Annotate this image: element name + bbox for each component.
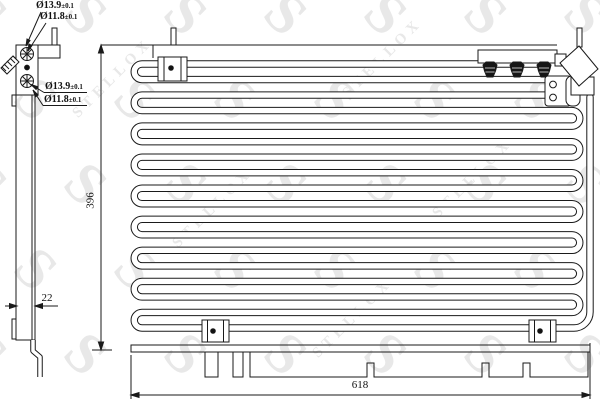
- right-pin: [577, 28, 582, 47]
- manifold-fitting-1: [483, 62, 497, 77]
- front-view: [101, 28, 598, 377]
- top-pin: [171, 28, 176, 45]
- height-dimension-text: 396: [86, 186, 99, 216]
- bottom-z-bracket: [33, 340, 40, 377]
- mounting-clip-bottom-right: [529, 320, 556, 342]
- dia-value: Ø11.8: [40, 11, 65, 22]
- dia-tolerance: ±0.1: [70, 83, 83, 91]
- dia-value: Ø13.9: [45, 81, 70, 92]
- port-dia-label-top-outer: Ø13.9±0.1: [36, 1, 74, 11]
- dia-tolerance: ±0.1: [69, 96, 82, 104]
- port-top: [21, 48, 34, 61]
- condenser-technical-drawing: SSSSSSSSSSSSSSSSSSSSSSSSSSSSSSSSSSSSTELL…: [0, 0, 600, 400]
- depth-dimension-text: 22: [36, 293, 58, 304]
- port-dia-label-top-inner: Ø11.8±0.1: [40, 12, 77, 22]
- width-dimension-text: 618: [344, 380, 376, 391]
- manifold-fitting-2: [510, 62, 524, 77]
- center-bolt-dot: [25, 65, 30, 70]
- rivet-dot: [169, 66, 174, 71]
- manifold-fitting-3: [537, 62, 551, 77]
- serpentine-tube: [134, 64, 590, 328]
- bracket-hole: [550, 81, 557, 88]
- rivet-dot: [538, 329, 543, 334]
- dia-tolerance: ±0.1: [61, 2, 74, 10]
- mounting-clip-top: [158, 57, 187, 81]
- port-dia-label-low-inner: Ø11.8±0.1: [44, 95, 81, 105]
- dia-value: Ø13.9: [36, 0, 61, 11]
- inlet-manifold: [478, 50, 566, 77]
- bottom-rail: [131, 345, 590, 377]
- dia-tolerance: ±0.1: [65, 13, 78, 21]
- port-dia-label-low-outer: Ø13.9±0.1: [45, 82, 83, 92]
- bracket-hole: [550, 94, 557, 101]
- mounting-clip-bottom-left: [202, 320, 229, 342]
- rivet-dot: [211, 329, 216, 334]
- dia-value: Ø11.8: [44, 94, 69, 105]
- left-pin: [52, 28, 57, 45]
